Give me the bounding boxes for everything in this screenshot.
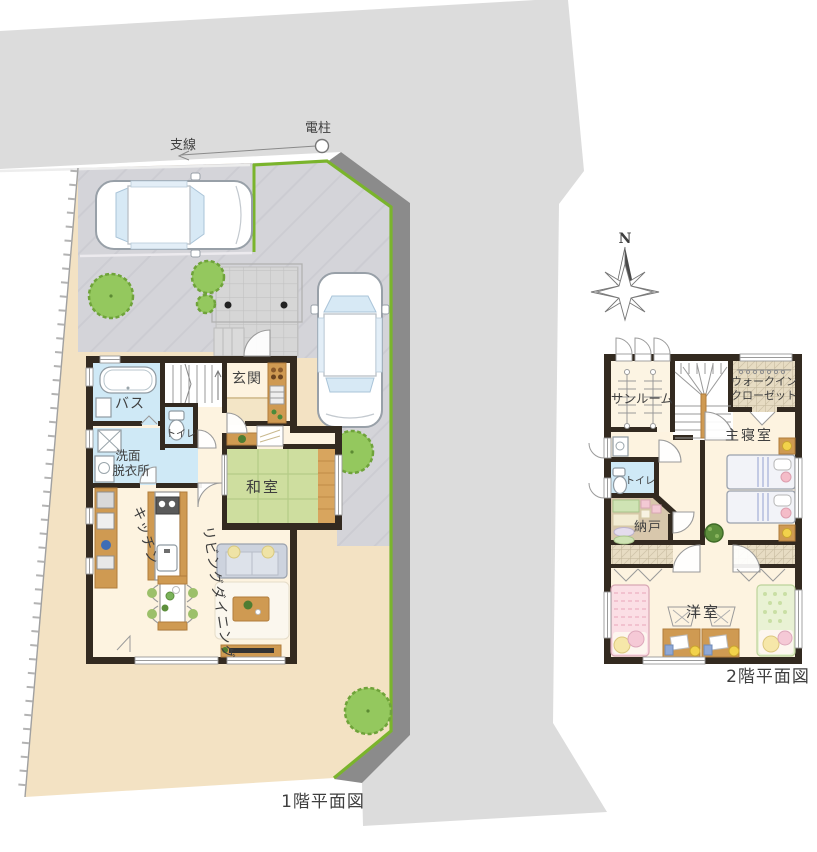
compass-rose: N xyxy=(591,231,659,320)
car-rear-window xyxy=(116,188,128,242)
shelf-box xyxy=(613,500,639,512)
dining-table-wood-end xyxy=(158,576,187,584)
tree-center xyxy=(109,294,112,297)
kitchen-appliance xyxy=(97,492,114,508)
chair-cushion xyxy=(188,609,198,619)
chair-cushion xyxy=(188,588,198,598)
kitchen-island-wood-right xyxy=(180,492,187,580)
bedroom-plant xyxy=(705,524,723,542)
car-mirror xyxy=(311,305,318,314)
f2-master-label: 主寝室 xyxy=(725,427,773,444)
dining-plate xyxy=(166,592,174,600)
bed-pillow xyxy=(774,495,791,506)
plant-detail xyxy=(708,527,712,531)
shelf-box xyxy=(641,500,650,508)
desk-clock xyxy=(690,646,700,656)
table-cup xyxy=(256,610,261,615)
floor1-caption: 1階平面図 xyxy=(281,792,365,812)
f1-toilet-label: トイレ xyxy=(166,429,196,440)
dining-plate xyxy=(173,587,180,594)
coffee-table xyxy=(233,597,269,621)
car-side-glass xyxy=(131,181,187,187)
kitchen-appliance xyxy=(97,556,114,569)
bed-cushion xyxy=(781,508,791,518)
parked-car-horizontal xyxy=(96,173,252,257)
f2-basin xyxy=(613,437,628,456)
car-side-glass xyxy=(318,318,324,372)
bed-pillow xyxy=(774,459,791,470)
utility-pole-icon xyxy=(316,140,329,153)
shelf-box xyxy=(652,505,661,513)
storage-basket xyxy=(614,528,634,537)
car-roof xyxy=(128,186,190,244)
f1-bath-label: バス xyxy=(115,396,145,412)
compass-north-label: N xyxy=(619,231,632,247)
f1-washroom-label-2: 脱衣所 xyxy=(112,463,150,478)
f2-sunroom-label: サンルーム xyxy=(611,391,673,406)
kitchen-kettle xyxy=(101,540,111,550)
parked-car-vertical xyxy=(311,273,389,427)
bed-cushion xyxy=(781,472,791,482)
tree xyxy=(197,295,215,313)
car-mirror xyxy=(191,250,200,257)
utility-pole-label: 電柱 xyxy=(305,121,331,136)
chair-cushion xyxy=(147,588,157,598)
porch-post xyxy=(281,302,288,309)
tree-center xyxy=(350,450,353,453)
floor2-caption: 2階平面図 xyxy=(726,667,810,687)
desk-item-blue xyxy=(665,645,673,655)
bath-stool xyxy=(96,398,111,417)
f1-stairs-area xyxy=(165,363,222,407)
vanity xyxy=(95,456,114,482)
storage-basket xyxy=(614,536,634,544)
plant-detail xyxy=(715,534,719,538)
table-plant xyxy=(244,601,253,610)
f2-wic-label-1: ウォークイン xyxy=(731,375,797,388)
dining-table-wood-end xyxy=(158,622,187,630)
bed-pillow-round xyxy=(628,631,644,647)
clock xyxy=(783,442,792,451)
f1-shoe-cabinet xyxy=(268,363,286,423)
car-rear-window xyxy=(326,378,374,392)
desk-clock xyxy=(729,646,739,656)
car-mirror xyxy=(382,305,389,314)
kitchen-appliance xyxy=(97,513,114,529)
car-windshield xyxy=(190,186,204,244)
desk-item-blue xyxy=(704,645,712,655)
bed-pillow-round xyxy=(778,631,792,645)
f2-toilet-label: トイレ xyxy=(625,476,655,487)
f2-wic-label-2: クローゼット xyxy=(731,389,797,402)
dining-plate xyxy=(162,605,169,612)
car-roof xyxy=(324,314,376,376)
sofa-pillow xyxy=(228,546,240,558)
stove-burner xyxy=(159,501,165,507)
stove-burner xyxy=(169,501,175,507)
bed-pillow-round xyxy=(763,636,779,652)
support-wire-label: 支線 xyxy=(170,137,196,153)
car-side-glass xyxy=(376,318,382,372)
f2-youshitsu-label: 洋室 xyxy=(686,603,720,621)
approach-step xyxy=(214,328,244,356)
tree-center xyxy=(366,709,369,712)
f2-closet-left-hatch xyxy=(611,545,673,566)
sofa-pillow xyxy=(262,546,274,558)
car-windshield xyxy=(324,296,376,312)
f1-washroom-label-1: 洗面 xyxy=(115,448,140,463)
bathtub-drain xyxy=(127,387,130,390)
floorplan-page: 支線 電柱 N xyxy=(0,0,817,852)
f1-washitsu-label: 和室 xyxy=(246,478,280,496)
clock xyxy=(783,529,792,538)
tree xyxy=(192,261,224,293)
f1-engawa-strip xyxy=(318,449,335,523)
ledge-plant xyxy=(238,435,246,443)
car-side-glass xyxy=(131,243,187,249)
f2-toilet-tank xyxy=(613,468,625,476)
f1-genkan-label: 玄関 xyxy=(232,370,262,387)
porch-post xyxy=(225,302,232,309)
car-mirror xyxy=(191,173,200,180)
sink-faucet xyxy=(164,549,170,553)
f2-storage-label: 納戸 xyxy=(634,520,662,535)
floor2-plan: サンルーム ウォークイン クローゼット 主寝室 トイレ 納戸 洋室 2階平面図 xyxy=(589,338,810,687)
shelf-box xyxy=(641,510,650,518)
chair-cushion xyxy=(147,609,157,619)
